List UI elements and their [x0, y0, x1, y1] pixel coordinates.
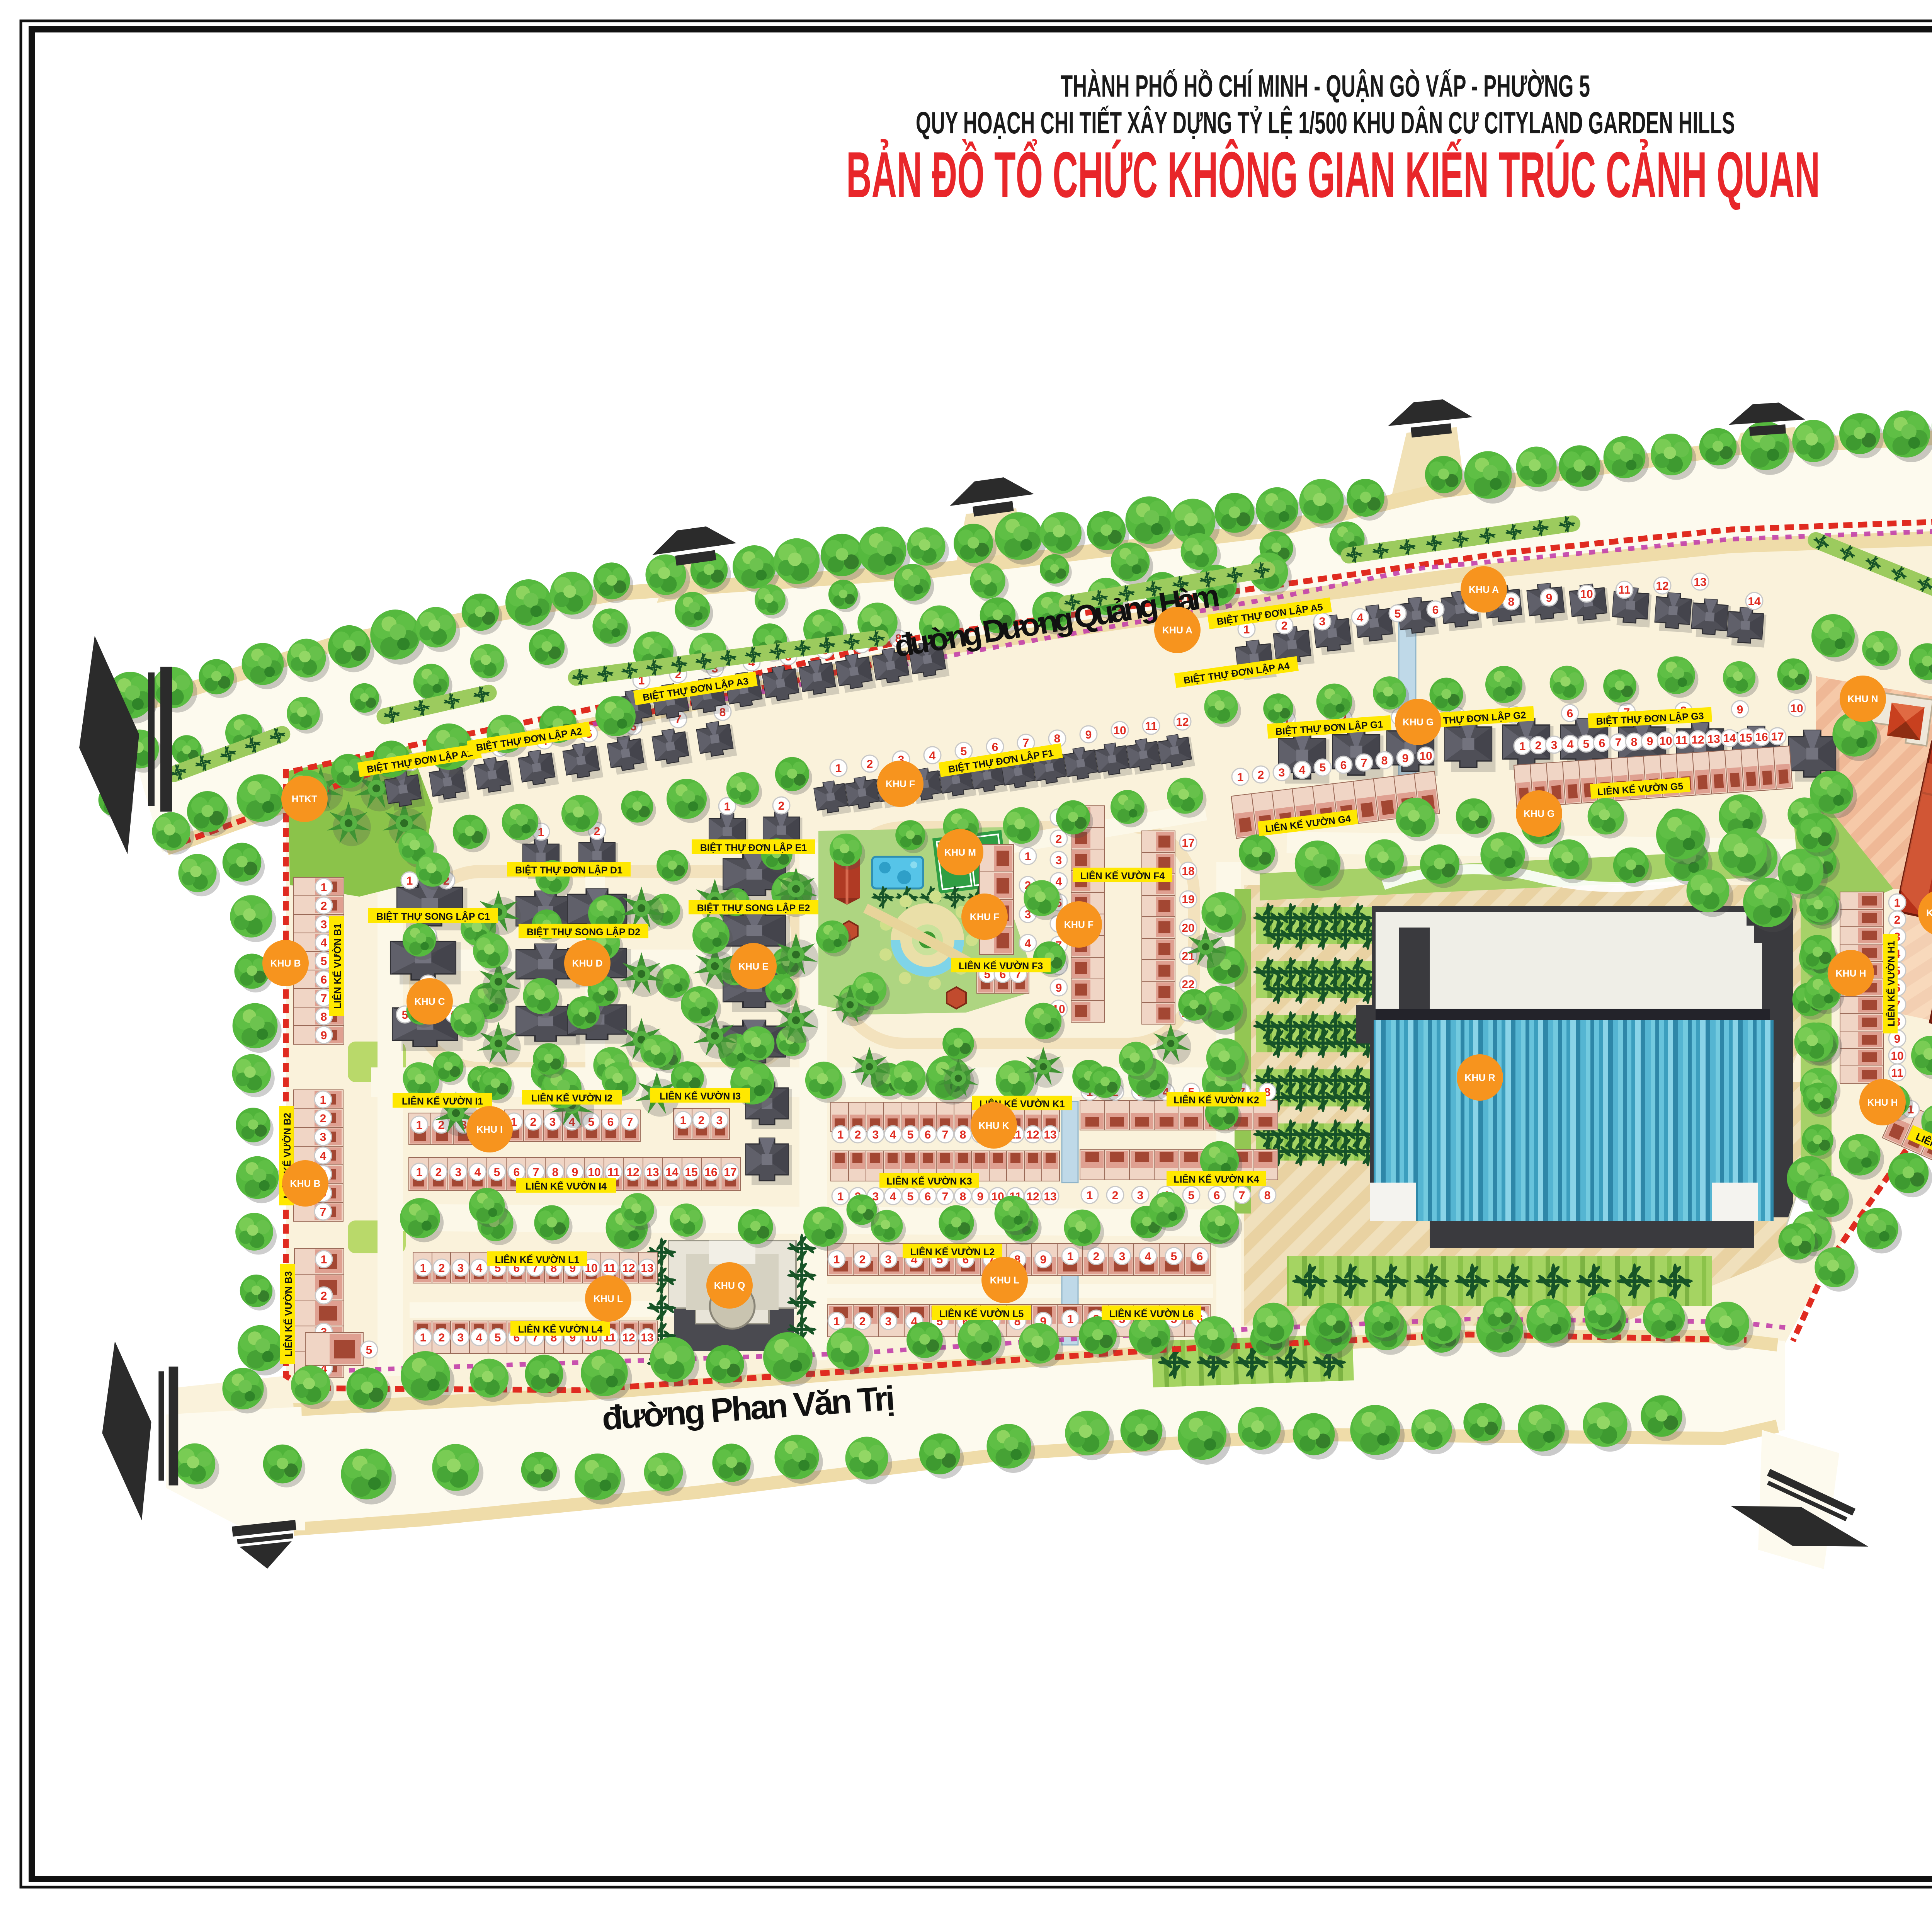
svg-text:KHU I: KHU I — [476, 1124, 503, 1135]
svg-text:9: 9 — [572, 1166, 578, 1179]
svg-text:10: 10 — [1659, 735, 1672, 747]
svg-text:2: 2 — [1535, 739, 1542, 752]
svg-text:5: 5 — [1583, 738, 1590, 751]
svg-text:4: 4 — [474, 1166, 481, 1179]
svg-text:KHU H: KHU H — [1835, 968, 1866, 979]
svg-text:13: 13 — [1694, 576, 1706, 589]
svg-text:14: 14 — [1723, 732, 1736, 745]
svg-text:2: 2 — [1056, 833, 1062, 846]
svg-text:5: 5 — [907, 1128, 914, 1141]
svg-text:8: 8 — [960, 1128, 966, 1141]
svg-text:2: 2 — [321, 900, 327, 912]
svg-text:KHU B: KHU B — [290, 1178, 320, 1189]
svg-text:BIỆT THỰ ĐƠN LẬP D1: BIỆT THỰ ĐƠN LẬP D1 — [515, 864, 622, 876]
svg-text:1: 1 — [1067, 1250, 1074, 1263]
svg-text:4: 4 — [1567, 738, 1574, 751]
svg-text:12: 12 — [1176, 716, 1189, 728]
svg-text:2: 2 — [321, 1290, 327, 1302]
svg-text:4: 4 — [1056, 875, 1062, 888]
svg-text:2: 2 — [1258, 769, 1264, 781]
svg-text:KHU B: KHU B — [270, 958, 301, 969]
svg-text:8: 8 — [552, 1166, 559, 1179]
svg-text:LIÊN KẾ VƯỜN K4: LIÊN KẾ VƯỜN K4 — [1173, 1173, 1259, 1185]
svg-text:KHU P: KHU P — [1926, 908, 1932, 919]
svg-text:8: 8 — [1054, 732, 1061, 745]
svg-text:2: 2 — [778, 800, 785, 812]
svg-text:7: 7 — [320, 1206, 327, 1219]
svg-text:19: 19 — [1182, 893, 1194, 906]
svg-text:12: 12 — [626, 1166, 639, 1179]
svg-text:17: 17 — [1771, 730, 1784, 743]
svg-text:1: 1 — [1087, 1189, 1093, 1202]
svg-text:10: 10 — [1113, 724, 1126, 737]
svg-text:11: 11 — [1618, 584, 1631, 596]
svg-text:9: 9 — [1085, 728, 1092, 741]
svg-text:10: 10 — [588, 1166, 600, 1179]
svg-text:2: 2 — [859, 1315, 866, 1328]
svg-text:12: 12 — [622, 1331, 635, 1344]
svg-text:4: 4 — [1145, 1250, 1151, 1263]
svg-text:1: 1 — [321, 1253, 327, 1266]
svg-text:KHU A: KHU A — [1162, 625, 1192, 636]
svg-text:13: 13 — [641, 1262, 653, 1275]
svg-text:KHU F: KHU F — [1064, 919, 1094, 930]
svg-text:7: 7 — [1615, 736, 1622, 749]
svg-text:LIÊN KẾ VƯỜN H1: LIÊN KẾ VƯỜN H1 — [1885, 941, 1897, 1026]
svg-text:22: 22 — [1182, 978, 1194, 991]
svg-text:2: 2 — [439, 1262, 445, 1275]
svg-text:6: 6 — [1214, 1189, 1220, 1202]
svg-text:11: 11 — [604, 1262, 616, 1275]
svg-text:9: 9 — [1546, 592, 1553, 604]
svg-text:13: 13 — [1044, 1128, 1056, 1141]
svg-text:1: 1 — [833, 1315, 840, 1328]
svg-text:12: 12 — [622, 1262, 635, 1275]
svg-text:17: 17 — [724, 1166, 736, 1179]
svg-text:11: 11 — [1891, 1067, 1903, 1079]
svg-text:4: 4 — [321, 936, 327, 949]
svg-text:KHU N: KHU N — [1847, 694, 1878, 705]
svg-text:2: 2 — [320, 1112, 327, 1125]
svg-text:13: 13 — [646, 1166, 659, 1179]
svg-text:LIÊN KẾ VƯỜN L1: LIÊN KẾ VƯỜN L1 — [495, 1254, 580, 1265]
svg-text:1: 1 — [1067, 1313, 1074, 1326]
svg-text:LIÊN KẾ VƯỜN B1: LIÊN KẾ VƯỜN B1 — [332, 923, 343, 1009]
svg-text:3: 3 — [320, 1131, 327, 1144]
svg-text:1: 1 — [321, 881, 327, 894]
svg-text:LIÊN KẾ VƯỜN B3: LIÊN KẾ VƯỜN B3 — [282, 1271, 294, 1357]
svg-text:3: 3 — [1551, 739, 1558, 752]
svg-text:5: 5 — [961, 745, 967, 758]
svg-text:6: 6 — [1197, 1250, 1203, 1263]
svg-text:9: 9 — [1894, 1033, 1901, 1045]
svg-text:1: 1 — [320, 1094, 327, 1106]
svg-text:6: 6 — [321, 974, 327, 986]
svg-text:12: 12 — [1026, 1190, 1039, 1203]
svg-text:3: 3 — [1119, 1250, 1126, 1263]
svg-text:6: 6 — [1340, 759, 1347, 772]
svg-text:7: 7 — [1023, 737, 1029, 749]
svg-text:KHU M: KHU M — [944, 847, 976, 858]
svg-text:3: 3 — [1279, 766, 1285, 779]
svg-text:6: 6 — [1567, 707, 1573, 720]
svg-text:6: 6 — [992, 741, 998, 754]
svg-text:1: 1 — [416, 1119, 423, 1132]
svg-text:5: 5 — [1395, 608, 1401, 620]
svg-text:3: 3 — [1056, 854, 1062, 867]
svg-text:11: 11 — [1145, 720, 1157, 733]
svg-text:LIÊN KẾ VƯỜN L4: LIÊN KẾ VƯỜN L4 — [518, 1323, 603, 1335]
svg-text:THÀNH PHỐ HỒ CHÍ MINH - QUẬN G: THÀNH PHỐ HỒ CHÍ MINH - QUẬN GÒ VẤP - PH… — [1061, 69, 1590, 103]
svg-text:5: 5 — [495, 1331, 501, 1344]
svg-text:LIÊN KẾ VƯỜN F4: LIÊN KẾ VƯỜN F4 — [1080, 870, 1165, 882]
svg-text:1: 1 — [837, 1128, 844, 1141]
svg-text:9: 9 — [977, 1190, 984, 1203]
svg-text:BẢN ĐỒ TỔ CHỨC KHÔNG GIAN KIẾN: BẢN ĐỒ TỔ CHỨC KHÔNG GIAN KIẾN TRÚC CẢNH… — [846, 138, 1820, 211]
svg-text:5: 5 — [1171, 1250, 1177, 1263]
svg-text:1: 1 — [420, 1331, 427, 1344]
svg-text:6: 6 — [607, 1116, 614, 1128]
svg-text:3: 3 — [716, 1114, 723, 1127]
svg-text:5: 5 — [1188, 1189, 1195, 1202]
svg-text:LIÊN KẾ VƯỜN F3: LIÊN KẾ VƯỜN F3 — [959, 960, 1043, 972]
svg-text:9: 9 — [1647, 735, 1653, 748]
svg-text:6: 6 — [514, 1166, 520, 1179]
svg-text:5: 5 — [494, 1166, 500, 1179]
svg-text:4: 4 — [1025, 937, 1031, 950]
svg-text:3: 3 — [1319, 615, 1326, 628]
svg-text:1: 1 — [835, 762, 842, 775]
svg-text:12: 12 — [1656, 580, 1668, 592]
svg-text:1: 1 — [833, 1253, 840, 1266]
svg-text:8: 8 — [1631, 736, 1638, 749]
svg-text:11: 11 — [607, 1166, 620, 1179]
svg-text:1: 1 — [680, 1114, 687, 1127]
svg-text:4: 4 — [929, 749, 936, 762]
svg-text:16: 16 — [704, 1166, 717, 1179]
svg-text:8: 8 — [321, 1011, 327, 1023]
svg-text:KHU F: KHU F — [970, 912, 999, 923]
svg-text:KHU Q: KHU Q — [714, 1280, 745, 1291]
svg-text:8: 8 — [1264, 1189, 1271, 1202]
svg-text:2: 2 — [1281, 620, 1288, 632]
svg-text:KHU F: KHU F — [886, 779, 915, 790]
svg-text:LIÊN KẾ VƯỜN I3: LIÊN KẾ VƯỜN I3 — [660, 1090, 741, 1102]
svg-text:BIỆT THỰ ĐƠN LẬP E1: BIỆT THỰ ĐƠN LẬP E1 — [700, 842, 807, 853]
svg-text:15: 15 — [1739, 732, 1752, 744]
svg-text:8: 8 — [960, 1190, 966, 1203]
svg-text:3: 3 — [321, 918, 327, 931]
svg-text:14: 14 — [1748, 595, 1761, 608]
svg-text:1: 1 — [837, 1190, 844, 1203]
svg-text:2: 2 — [1093, 1250, 1100, 1263]
svg-text:7: 7 — [533, 1166, 539, 1179]
svg-text:1: 1 — [1243, 623, 1250, 636]
svg-text:LIÊN KẾ VƯỜN K2: LIÊN KẾ VƯỜN K2 — [1173, 1094, 1259, 1106]
svg-text:5: 5 — [1320, 761, 1326, 774]
svg-text:5: 5 — [907, 1190, 914, 1203]
svg-text:1: 1 — [724, 800, 731, 813]
svg-text:2: 2 — [855, 1128, 861, 1141]
svg-text:3: 3 — [549, 1116, 556, 1128]
svg-text:KHU G: KHU G — [1524, 808, 1555, 819]
svg-text:LIÊN KẾ VƯỜN I1: LIÊN KẾ VƯỜN I1 — [402, 1095, 483, 1107]
svg-text:LIÊN KẾ VƯỜN L5: LIÊN KẾ VƯỜN L5 — [939, 1308, 1024, 1319]
svg-text:1: 1 — [1894, 897, 1901, 909]
svg-text:10: 10 — [1891, 1050, 1903, 1062]
svg-text:7: 7 — [321, 992, 327, 1005]
svg-text:5: 5 — [366, 1344, 372, 1357]
svg-text:4: 4 — [1357, 611, 1364, 624]
svg-text:LIÊN KẾ VƯỜN L6: LIÊN KẾ VƯỜN L6 — [1109, 1308, 1194, 1319]
svg-text:8: 8 — [1381, 754, 1388, 767]
svg-text:17: 17 — [1182, 837, 1194, 849]
svg-text:13: 13 — [641, 1331, 653, 1344]
svg-text:HTKT: HTKT — [292, 794, 318, 805]
svg-text:7: 7 — [1361, 757, 1367, 769]
svg-text:KHU K: KHU K — [978, 1120, 1009, 1131]
svg-text:LIÊN KẾ VƯỜN L2: LIÊN KẾ VƯỜN L2 — [910, 1246, 995, 1258]
svg-text:20: 20 — [1182, 922, 1194, 934]
svg-text:LIÊN KẾ VƯỜN I4: LIÊN KẾ VƯỜN I4 — [526, 1180, 607, 1192]
svg-text:BIỆT THỰ SONG LẬP E2: BIỆT THỰ SONG LẬP E2 — [697, 902, 810, 914]
svg-text:9: 9 — [1040, 1253, 1047, 1266]
svg-text:9: 9 — [1056, 982, 1062, 994]
svg-text:QUY HOẠCH CHI TIẾT XÂY DỰNG TỶ: QUY HOẠCH CHI TIẾT XÂY DỰNG TỶ LỆ 1/500 … — [916, 106, 1735, 140]
svg-text:15: 15 — [685, 1166, 697, 1179]
svg-text:LIÊN KẾ VƯỜN I2: LIÊN KẾ VƯỜN I2 — [531, 1092, 612, 1104]
svg-text:6: 6 — [925, 1128, 931, 1141]
svg-text:10: 10 — [1419, 750, 1432, 763]
svg-text:3: 3 — [457, 1331, 464, 1344]
svg-text:11: 11 — [1675, 734, 1688, 747]
svg-text:14: 14 — [665, 1166, 679, 1179]
svg-text:2: 2 — [1112, 1189, 1119, 1202]
svg-text:3: 3 — [1137, 1189, 1144, 1202]
svg-text:13: 13 — [1707, 733, 1720, 745]
svg-text:KHU A: KHU A — [1469, 584, 1499, 595]
svg-text:KHU D: KHU D — [572, 958, 602, 969]
svg-text:9: 9 — [1737, 703, 1743, 716]
svg-text:KHU E: KHU E — [738, 961, 769, 972]
svg-text:KHU G: KHU G — [1403, 717, 1434, 728]
svg-text:6: 6 — [1599, 737, 1605, 750]
svg-text:1: 1 — [1519, 740, 1526, 753]
svg-text:1: 1 — [1025, 850, 1031, 863]
svg-text:4: 4 — [890, 1128, 896, 1141]
svg-text:1: 1 — [1237, 771, 1244, 784]
svg-text:2: 2 — [435, 1166, 442, 1179]
svg-text:7: 7 — [1239, 1189, 1245, 1202]
svg-text:9: 9 — [1402, 752, 1409, 765]
svg-text:7: 7 — [627, 1116, 633, 1128]
svg-text:4: 4 — [1299, 764, 1306, 776]
svg-text:4: 4 — [476, 1331, 483, 1344]
svg-text:3: 3 — [872, 1128, 879, 1141]
svg-text:12: 12 — [1026, 1128, 1039, 1141]
svg-text:5: 5 — [321, 955, 327, 968]
svg-text:KHU L: KHU L — [594, 1294, 623, 1304]
svg-text:3: 3 — [455, 1166, 462, 1179]
svg-text:4: 4 — [320, 1150, 327, 1163]
svg-text:1: 1 — [416, 1166, 423, 1179]
svg-text:KHU R: KHU R — [1464, 1072, 1495, 1083]
svg-text:8: 8 — [1508, 596, 1515, 608]
svg-text:2: 2 — [1894, 914, 1901, 926]
svg-text:2: 2 — [530, 1116, 537, 1128]
svg-text:16: 16 — [1755, 731, 1768, 744]
svg-text:1: 1 — [420, 1262, 427, 1275]
svg-text:LIÊN KẾ VƯỜN K3: LIÊN KẾ VƯỜN K3 — [886, 1175, 972, 1187]
svg-text:BIỆT THỰ SONG LẬP C1: BIỆT THỰ SONG LẬP C1 — [376, 911, 490, 922]
svg-text:KHU C: KHU C — [414, 996, 445, 1007]
svg-text:18: 18 — [1182, 865, 1194, 878]
svg-text:BIỆT THỰ SONG LẬP D2: BIỆT THỰ SONG LẬP D2 — [527, 926, 640, 938]
svg-text:4: 4 — [476, 1262, 483, 1275]
svg-text:6: 6 — [925, 1190, 931, 1203]
svg-text:1: 1 — [406, 875, 413, 887]
svg-text:13: 13 — [1044, 1190, 1056, 1203]
svg-text:2: 2 — [439, 1331, 445, 1344]
svg-text:10: 10 — [1790, 702, 1803, 715]
svg-text:2: 2 — [859, 1253, 866, 1266]
svg-text:12: 12 — [1691, 734, 1704, 746]
svg-text:7: 7 — [942, 1128, 949, 1141]
svg-text:7: 7 — [942, 1190, 949, 1203]
svg-text:6: 6 — [1432, 604, 1439, 616]
svg-text:4: 4 — [890, 1190, 896, 1203]
svg-text:2: 2 — [867, 758, 873, 771]
svg-text:2: 2 — [698, 1114, 705, 1127]
svg-text:10: 10 — [1580, 588, 1593, 601]
svg-text:KHU H: KHU H — [1867, 1097, 1898, 1108]
svg-text:3: 3 — [885, 1253, 892, 1266]
svg-text:3: 3 — [457, 1262, 464, 1275]
svg-text:9: 9 — [321, 1029, 327, 1042]
svg-text:KHU L: KHU L — [990, 1275, 1019, 1286]
svg-text:3: 3 — [885, 1315, 892, 1328]
